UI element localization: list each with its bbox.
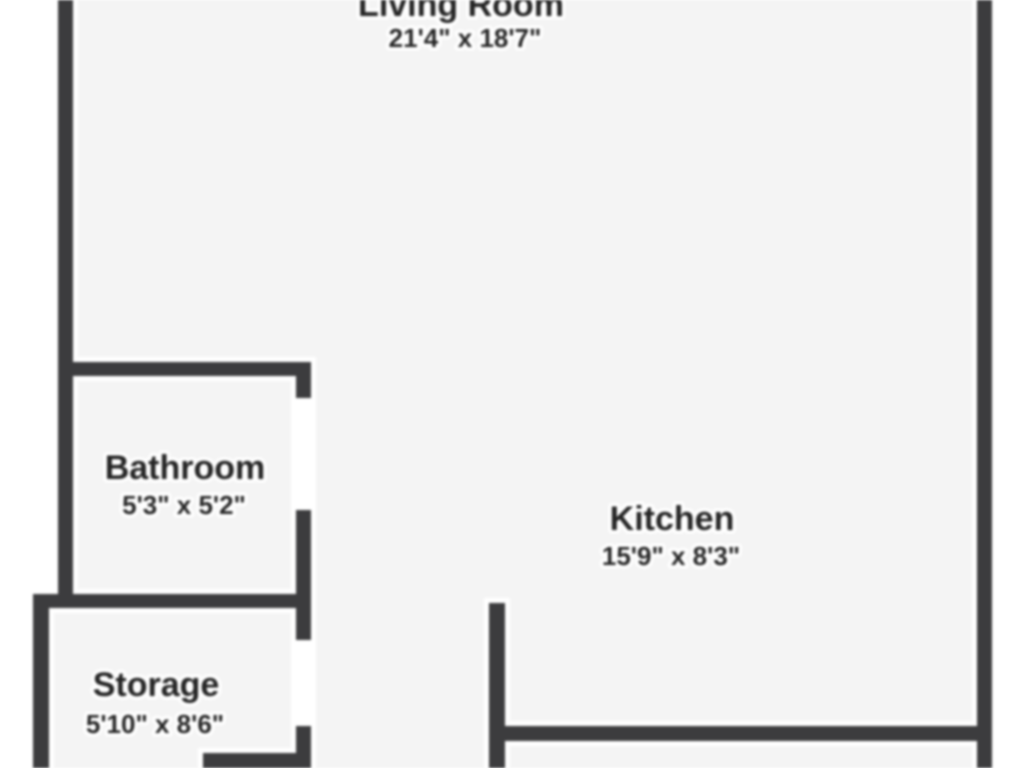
svg-text:Living Room: Living Room [358,0,564,24]
svg-text:15'9" x 8'3": 15'9" x 8'3" [602,541,740,571]
svg-text:5'3" x 5'2": 5'3" x 5'2" [122,490,246,520]
svg-text:5'10" x 8'6": 5'10" x 8'6" [86,709,224,739]
svg-text:Kitchen: Kitchen [610,500,735,538]
svg-text:21'4" x 18'7": 21'4" x 18'7" [389,23,542,53]
svg-text:Bathroom: Bathroom [105,449,266,487]
svg-text:Storage: Storage [93,666,220,704]
